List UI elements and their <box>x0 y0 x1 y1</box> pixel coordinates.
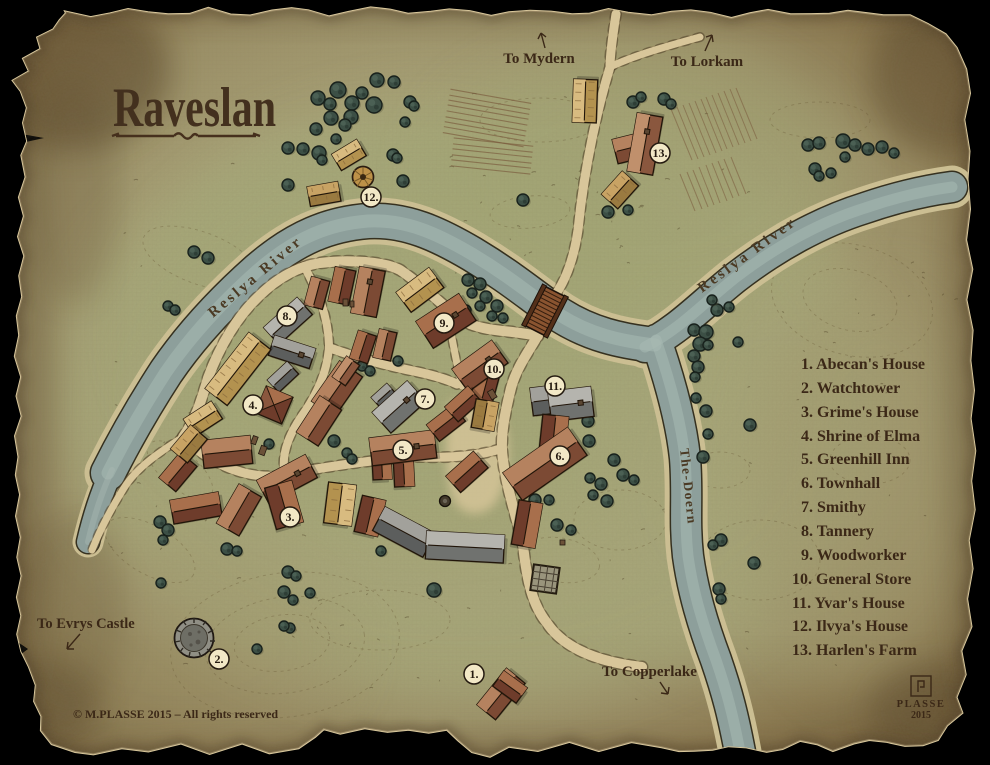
svg-text:PLASSE: PLASSE <box>897 699 946 710</box>
svg-text:8. Tannery: 8. Tannery <box>801 523 874 540</box>
svg-text:Raveslan: Raveslan <box>113 77 276 139</box>
svg-text:12.: 12. <box>364 190 379 204</box>
svg-text:5. Greenhill Inn: 5. Greenhill Inn <box>801 451 910 468</box>
svg-text:To Lorkam: To Lorkam <box>671 54 744 70</box>
svg-text:1. Abecan's House: 1. Abecan's House <box>801 356 925 373</box>
svg-text:9.: 9. <box>440 316 449 330</box>
svg-text:10.: 10. <box>487 362 502 376</box>
svg-text:8.: 8. <box>283 309 292 323</box>
svg-text:© M.PLASSE 2015 – All rights r: © M.PLASSE 2015 – All rights reserved <box>73 707 278 721</box>
svg-text:2. Watchtower: 2. Watchtower <box>801 380 900 397</box>
svg-text:2.: 2. <box>215 652 224 666</box>
svg-text:2015: 2015 <box>911 710 931 721</box>
svg-text:11.: 11. <box>548 379 562 393</box>
svg-text:To Evrys Castle: To Evrys Castle <box>37 616 135 632</box>
svg-text:6.: 6. <box>556 449 565 463</box>
svg-text:5.: 5. <box>399 443 408 457</box>
svg-text:4.: 4. <box>249 398 258 412</box>
svg-text:To Copperlake: To Copperlake <box>602 664 697 680</box>
svg-text:To Mydern: To Mydern <box>503 51 575 67</box>
svg-text:12. Ilvya's House: 12. Ilvya's House <box>792 618 908 635</box>
svg-text:6. Townhall: 6. Townhall <box>801 475 881 492</box>
svg-text:3. Grime's House: 3. Grime's House <box>801 404 919 421</box>
svg-text:3.: 3. <box>286 510 295 524</box>
svg-text:11. Yvar's House: 11. Yvar's House <box>792 595 905 612</box>
svg-text:1.: 1. <box>470 667 479 681</box>
svg-text:7. Smithy: 7. Smithy <box>801 499 866 516</box>
svg-text:9. Woodworker: 9. Woodworker <box>801 547 906 564</box>
svg-text:13. Harlen's Farm: 13. Harlen's Farm <box>792 642 918 659</box>
svg-text:10. General Store: 10. General Store <box>792 571 911 588</box>
svg-text:7.: 7. <box>421 392 430 406</box>
svg-text:13.: 13. <box>653 146 668 160</box>
svg-text:4. Shrine of Elma: 4. Shrine of Elma <box>801 428 920 445</box>
